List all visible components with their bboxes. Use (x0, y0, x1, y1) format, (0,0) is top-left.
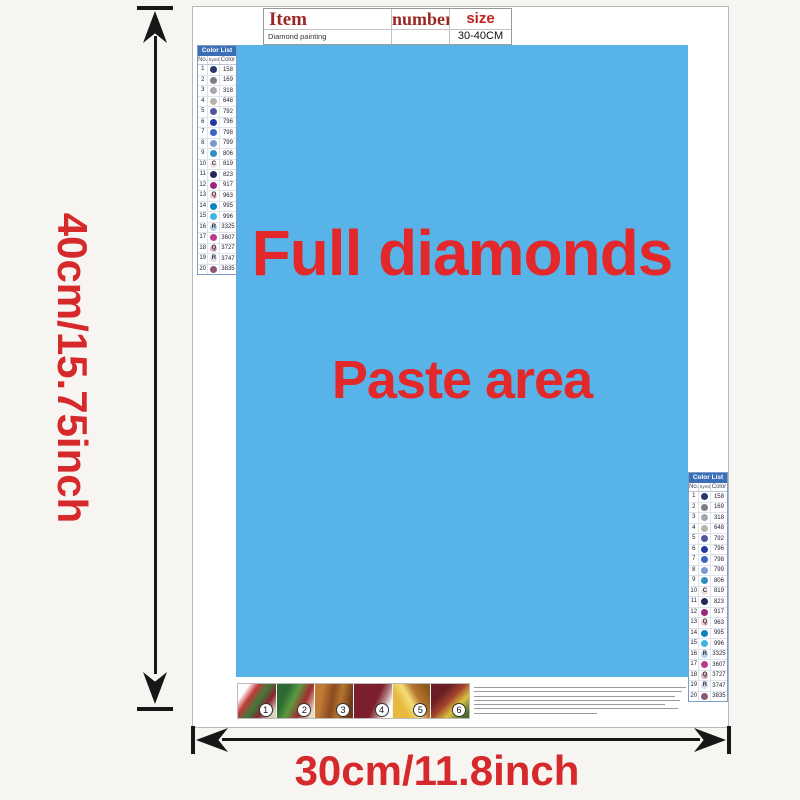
color-symbol-letter: R (699, 650, 710, 660)
color-code: 819 (711, 588, 727, 594)
color-list-column-header: Symbol (208, 56, 219, 64)
color-list-row-number: 5 (198, 107, 208, 117)
fine-print-line (474, 696, 675, 697)
color-list-row: 2169 (198, 76, 236, 87)
color-code: 799 (711, 567, 727, 573)
color-list-row: 19R3747 (198, 254, 236, 265)
color-list-row-number: 14 (198, 202, 208, 212)
color-list-row: 203835 (689, 692, 727, 702)
vertical-arrow-line (154, 36, 157, 674)
color-list-row: 10C819 (689, 587, 727, 598)
color-list-row: 1158 (198, 65, 236, 76)
color-symbol-icon: R (208, 223, 219, 233)
color-dot-icon (210, 213, 217, 220)
color-code: 792 (711, 536, 727, 542)
vertical-arrow-top-cap (137, 6, 173, 10)
color-code: 917 (220, 182, 236, 188)
color-list-row-number: 7 (198, 128, 208, 138)
color-symbol-icon: R (208, 254, 219, 264)
color-code: 917 (711, 609, 727, 615)
color-dot-icon (701, 609, 708, 616)
color-list-column-header: No. (689, 483, 699, 491)
color-list-row: 12917 (198, 181, 236, 192)
item-table-header-size: size (450, 9, 511, 30)
instruction-step-thumbnail: 4 (354, 684, 393, 718)
color-symbol-letter: R (208, 223, 219, 233)
color-dot-icon (210, 77, 217, 84)
color-list-row: 11823 (198, 170, 236, 181)
width-dimension-label: 30cm/11.8inch (237, 747, 637, 795)
color-symbol-icon: C (208, 160, 219, 170)
color-list-row: 4648 (198, 97, 236, 108)
color-list-column-header: Color (711, 483, 727, 491)
color-list-row-number: 2 (689, 503, 699, 513)
color-list-row-number: 15 (689, 639, 699, 649)
color-code: 158 (220, 67, 236, 73)
color-list-row-number: 1 (198, 65, 208, 75)
horizontal-arrow-line (222, 738, 700, 741)
color-list-row-number: 20 (689, 692, 699, 702)
color-code: 3325 (220, 224, 236, 230)
color-dot-icon (701, 493, 708, 500)
color-symbol-icon (208, 107, 219, 117)
color-list-row-number: 10 (689, 587, 699, 597)
color-dot-icon (210, 234, 217, 241)
color-code: 798 (220, 130, 236, 136)
color-list-column-header: No. (198, 56, 208, 64)
color-code: 996 (220, 214, 236, 220)
color-list-row-number: 3 (198, 86, 208, 96)
color-list-row-number: 17 (689, 660, 699, 670)
color-list-row: 8799 (689, 566, 727, 577)
color-code: 823 (220, 172, 236, 178)
color-symbol-icon (208, 181, 219, 191)
color-list-row: 13Q963 (689, 618, 727, 629)
color-dot-icon (701, 598, 708, 605)
color-list-row-number: 6 (198, 118, 208, 128)
fine-print-line (474, 687, 686, 688)
color-symbol-icon: C (699, 587, 710, 597)
height-dimension-label: 40cm/15.75inch (48, 138, 96, 598)
color-dot-icon (701, 535, 708, 542)
color-symbol-icon (699, 513, 710, 523)
paste-area-title: Full diamonds (236, 220, 688, 287)
color-list-row: 10C819 (198, 160, 236, 171)
color-symbol-letter: Q (699, 671, 710, 681)
color-list-column-headers: No.SymbolColor (198, 56, 236, 65)
color-list-row: 15996 (198, 212, 236, 223)
color-list-row-number: 19 (198, 254, 208, 264)
color-list-row: 9806 (198, 149, 236, 160)
color-list-row-number: 18 (198, 244, 208, 254)
color-list-row: 173607 (198, 233, 236, 244)
color-symbol-icon (208, 65, 219, 75)
color-code: 996 (711, 641, 727, 647)
color-symbol-icon (208, 118, 219, 128)
color-symbol-icon (208, 97, 219, 107)
color-symbol-icon (208, 265, 219, 275)
color-list-row-number: 7 (689, 555, 699, 565)
fine-print-line (474, 704, 665, 705)
color-list-row-number: 4 (689, 524, 699, 534)
instruction-step-thumbnail: 1 (238, 684, 277, 718)
color-list-row: 5792 (689, 534, 727, 545)
color-list-column-headers: No.SymbolColor (689, 483, 727, 492)
color-list-row-number: 9 (198, 149, 208, 159)
color-code: 963 (220, 193, 236, 199)
color-list-row: 4648 (689, 524, 727, 535)
color-dot-icon (701, 546, 708, 553)
color-code: 798 (711, 557, 727, 563)
color-symbol-icon (208, 86, 219, 96)
color-symbol-letter: Q (699, 618, 710, 628)
color-code: 963 (711, 620, 727, 626)
color-list-row: 1158 (689, 492, 727, 503)
color-symbol-icon (699, 524, 710, 534)
color-code: 819 (220, 161, 236, 167)
color-dot-icon (701, 693, 708, 700)
color-list-row-number: 3 (689, 513, 699, 523)
color-list-row-number: 12 (198, 181, 208, 191)
item-table-product-name: Diamond painting (264, 30, 392, 44)
color-symbol-icon: R (699, 681, 710, 691)
color-dot-icon (701, 504, 708, 511)
color-dot-icon (210, 140, 217, 147)
color-list-row-number: 13 (689, 618, 699, 628)
color-list-row: 14995 (198, 202, 236, 213)
color-symbol-letter: R (208, 254, 219, 264)
item-table: Item number size Diamond painting 30-40C… (263, 8, 512, 45)
color-list-left: Color ListNo.SymbolColor1158216933184648… (197, 45, 237, 275)
color-symbol-icon: R (699, 650, 710, 660)
color-list-row-number: 18 (689, 671, 699, 681)
color-symbol-icon: Q (208, 244, 219, 254)
color-symbol-icon (208, 139, 219, 149)
fine-print-line (474, 700, 680, 701)
vertical-arrow-bottom-cap (137, 707, 173, 711)
color-list-row-number: 1 (689, 492, 699, 502)
color-dot-icon (210, 203, 217, 210)
color-symbol-icon (208, 149, 219, 159)
color-symbol-icon (208, 212, 219, 222)
color-list-row: 18Q3727 (198, 244, 236, 255)
item-table-number-value (392, 30, 450, 44)
color-symbol-icon (208, 233, 219, 243)
color-dot-icon (210, 98, 217, 105)
instruction-step-thumbnail: 5 (393, 684, 432, 718)
fine-print-line (474, 713, 597, 714)
color-dot-icon (210, 150, 217, 157)
color-code: 799 (220, 140, 236, 146)
instruction-step-thumbnail: 3 (315, 684, 354, 718)
item-table-header-number: number (392, 9, 450, 30)
color-dot-icon (210, 171, 217, 178)
color-list-row-number: 2 (198, 76, 208, 86)
color-list-column-header: Symbol (699, 483, 710, 491)
color-list-row-number: 6 (689, 545, 699, 555)
color-list-row: 7798 (198, 128, 236, 139)
color-list-column-header: Color (220, 56, 236, 64)
color-list-row: 12917 (689, 608, 727, 619)
color-list-row: 203835 (198, 265, 236, 275)
color-dot-icon (701, 567, 708, 574)
step-number-badge: 2 (297, 703, 311, 717)
instructions-fine-print (474, 687, 686, 717)
color-code: 3727 (220, 245, 236, 251)
color-code: 158 (711, 494, 727, 500)
color-symbol-icon (699, 660, 710, 670)
color-list-row: 2169 (689, 503, 727, 514)
color-list-row-number: 17 (198, 233, 208, 243)
color-symbol-icon (208, 76, 219, 86)
color-list-row: 6796 (689, 545, 727, 556)
color-list-row-number: 13 (198, 191, 208, 201)
color-code: 318 (711, 515, 727, 521)
color-list-title: Color List (198, 46, 236, 56)
color-list-right: Color ListNo.SymbolColor1158216933184648… (688, 472, 728, 702)
instruction-steps-strip: 123456 (237, 683, 470, 719)
color-code: 806 (711, 578, 727, 584)
color-symbol-icon (699, 492, 710, 502)
color-list-row: 19R3747 (689, 681, 727, 692)
color-list-row-number: 8 (689, 566, 699, 576)
color-list-row: 173607 (689, 660, 727, 671)
color-code: 3747 (711, 683, 727, 689)
color-code: 3325 (711, 651, 727, 657)
color-dot-icon (210, 182, 217, 189)
color-code: 648 (220, 98, 236, 104)
fine-print-line (474, 691, 682, 692)
color-list-row: 11823 (689, 597, 727, 608)
color-dot-icon (701, 640, 708, 647)
color-symbol-icon (208, 128, 219, 138)
color-dot-icon (701, 514, 708, 521)
color-list-row-number: 20 (198, 265, 208, 275)
color-symbol-icon (699, 576, 710, 586)
color-list-row: 18Q3727 (689, 671, 727, 682)
color-code: 3727 (711, 672, 727, 678)
color-dot-icon (210, 108, 217, 115)
color-symbol-icon (699, 545, 710, 555)
color-symbol-icon (208, 202, 219, 212)
color-list-title: Color List (689, 473, 727, 483)
color-list-row: 14995 (689, 629, 727, 640)
color-dot-icon (701, 630, 708, 637)
color-list-row-number: 5 (689, 534, 699, 544)
color-code: 995 (711, 630, 727, 636)
step-number-badge: 3 (336, 703, 350, 717)
color-code: 318 (220, 88, 236, 94)
color-list-row: 3318 (689, 513, 727, 524)
step-number-badge: 1 (259, 703, 273, 717)
color-code: 169 (711, 504, 727, 510)
color-code: 995 (220, 203, 236, 209)
color-symbol-letter: C (208, 160, 219, 170)
color-symbol-icon (699, 555, 710, 565)
color-code: 169 (220, 77, 236, 83)
color-list-row-number: 11 (198, 170, 208, 180)
color-list-row-number: 9 (689, 576, 699, 586)
instruction-step-thumbnail: 2 (277, 684, 316, 718)
color-dot-icon (701, 661, 708, 668)
color-list-row-number: 16 (198, 223, 208, 233)
color-code: 806 (220, 151, 236, 157)
color-list-row-number: 4 (198, 97, 208, 107)
color-code: 3607 (711, 662, 727, 668)
instruction-step-thumbnail: 6 (431, 684, 469, 718)
color-list-row: 15996 (689, 639, 727, 650)
color-list-row-number: 19 (689, 681, 699, 691)
color-code: 3747 (220, 256, 236, 262)
color-code: 796 (220, 119, 236, 125)
color-list-row-number: 14 (689, 629, 699, 639)
color-symbol-letter: C (699, 587, 710, 597)
item-table-size-value: 30-40CM (450, 30, 511, 44)
color-code: 792 (220, 109, 236, 115)
color-list-row-number: 16 (689, 650, 699, 660)
step-number-badge: 5 (413, 703, 427, 717)
color-list-row: 9806 (689, 576, 727, 587)
color-dot-icon (701, 556, 708, 563)
fine-print-line (474, 708, 678, 709)
color-dot-icon (210, 266, 217, 273)
color-list-row-number: 12 (689, 608, 699, 618)
color-symbol-icon (699, 597, 710, 607)
color-symbol-letter: R (699, 681, 710, 691)
color-dot-icon (210, 129, 217, 136)
item-table-header-item: Item (264, 9, 392, 30)
color-list-row: 7798 (689, 555, 727, 566)
color-list-row-number: 10 (198, 160, 208, 170)
color-code: 3835 (711, 693, 727, 699)
color-list-row: 8799 (198, 139, 236, 150)
color-dot-icon (701, 577, 708, 584)
color-symbol-icon: Q (699, 671, 710, 681)
color-dot-icon (210, 87, 217, 94)
arrow-down-icon (143, 672, 167, 704)
step-number-badge: 6 (452, 703, 466, 717)
color-dot-icon (701, 525, 708, 532)
color-list-row: 13Q963 (198, 191, 236, 202)
color-symbol-icon (208, 170, 219, 180)
color-dot-icon (210, 119, 217, 126)
step-number-badge: 4 (375, 703, 389, 717)
color-symbol-letter: Q (208, 191, 219, 201)
color-symbol-icon (699, 692, 710, 702)
color-list-row: 3318 (198, 86, 236, 97)
color-symbol-icon: Q (208, 191, 219, 201)
color-symbol-icon (699, 639, 710, 649)
color-dot-icon (210, 66, 217, 73)
horizontal-arrow-left-cap (191, 726, 195, 754)
paste-area-subtitle: Paste area (236, 352, 688, 409)
color-list-row-number: 15 (198, 212, 208, 222)
color-symbol-letter: Q (208, 244, 219, 254)
color-code: 823 (711, 599, 727, 605)
color-list-row: 6796 (198, 118, 236, 129)
color-list-row: 16R3325 (689, 650, 727, 661)
color-symbol-icon (699, 503, 710, 513)
color-list-row: 16R3325 (198, 223, 236, 234)
color-symbol-icon (699, 566, 710, 576)
color-symbol-icon (699, 608, 710, 618)
color-list-row-number: 8 (198, 139, 208, 149)
color-list-row: 5792 (198, 107, 236, 118)
color-code: 648 (711, 525, 727, 531)
color-code: 3835 (220, 266, 236, 272)
color-symbol-icon (699, 629, 710, 639)
color-code: 796 (711, 546, 727, 552)
horizontal-arrow-right-cap (727, 726, 731, 754)
color-code: 3607 (220, 235, 236, 241)
color-symbol-icon: Q (699, 618, 710, 628)
color-symbol-icon (699, 534, 710, 544)
color-list-row-number: 11 (689, 597, 699, 607)
